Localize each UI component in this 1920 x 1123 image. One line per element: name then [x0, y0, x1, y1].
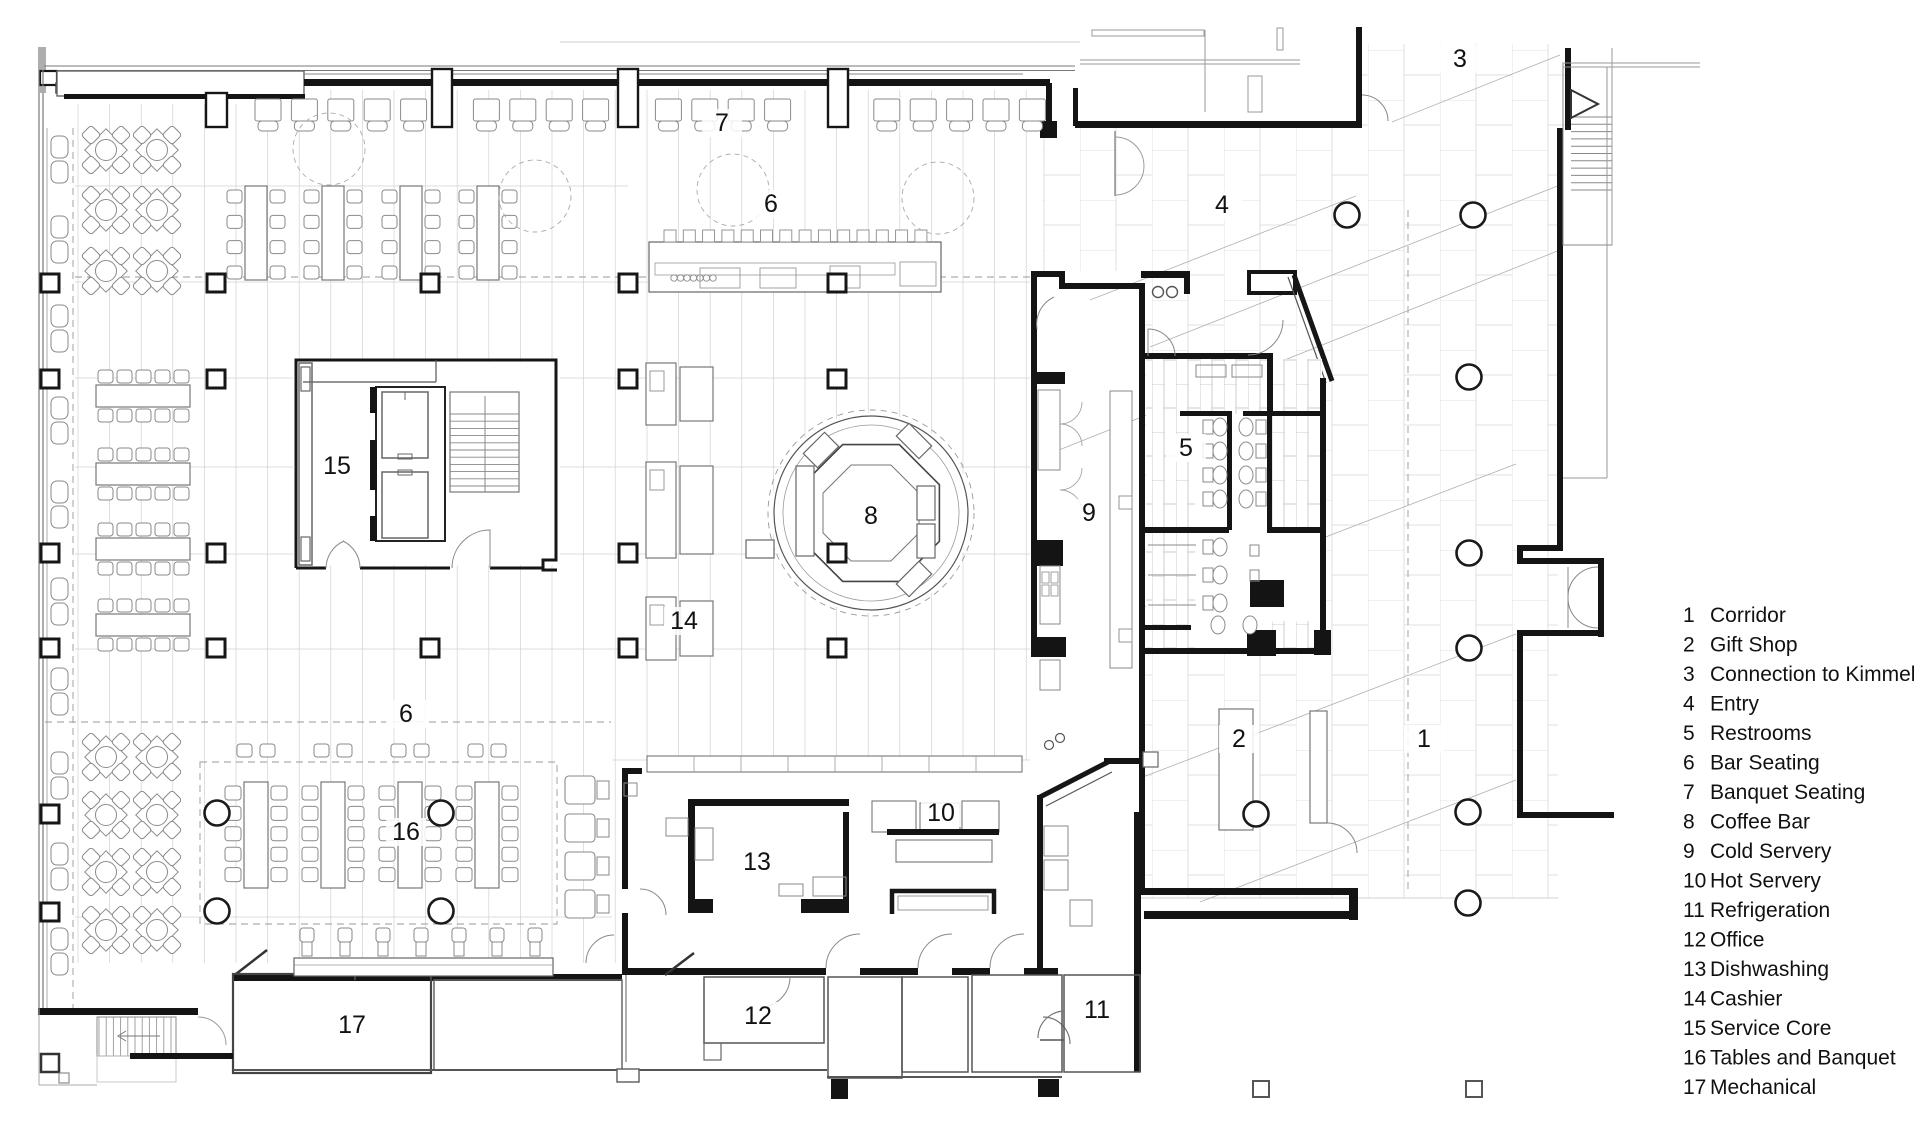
svg-text:2: 2: [1683, 634, 1695, 657]
svg-text:Dishwashing: Dishwashing: [1710, 958, 1829, 981]
svg-text:17: 17: [338, 1011, 366, 1039]
svg-text:Cold Servery: Cold Servery: [1710, 840, 1832, 863]
svg-text:3: 3: [1453, 45, 1467, 73]
svg-text:9: 9: [1082, 499, 1096, 527]
svg-text:Restrooms: Restrooms: [1710, 722, 1812, 745]
svg-text:15: 15: [1683, 1017, 1706, 1040]
svg-text:Banquet Seating: Banquet Seating: [1710, 781, 1865, 804]
svg-text:11: 11: [1683, 899, 1705, 922]
svg-text:10: 10: [1683, 870, 1706, 893]
svg-text:Coffee Bar: Coffee Bar: [1710, 811, 1810, 834]
svg-text:6: 6: [764, 190, 778, 218]
svg-text:17: 17: [1683, 1076, 1706, 1099]
svg-text:Entry: Entry: [1710, 693, 1760, 716]
svg-text:1: 1: [1417, 725, 1431, 753]
svg-text:9: 9: [1683, 840, 1695, 863]
svg-text:7: 7: [715, 109, 729, 137]
svg-text:16: 16: [392, 818, 420, 846]
svg-text:13: 13: [1683, 958, 1706, 981]
svg-text:6: 6: [399, 700, 413, 728]
svg-text:5: 5: [1683, 722, 1695, 745]
svg-text:4: 4: [1683, 693, 1695, 716]
svg-text:3: 3: [1683, 663, 1695, 686]
svg-text:15: 15: [323, 452, 351, 480]
svg-text:8: 8: [864, 502, 878, 530]
svg-text:16: 16: [1683, 1047, 1706, 1070]
svg-text:12: 12: [1683, 929, 1706, 952]
svg-text:2: 2: [1232, 725, 1246, 753]
svg-text:4: 4: [1215, 191, 1229, 219]
svg-text:14: 14: [1683, 988, 1707, 1011]
svg-text:Mechanical: Mechanical: [1710, 1076, 1816, 1099]
svg-text:Corridor: Corridor: [1710, 604, 1786, 627]
svg-text:Bar Seating: Bar Seating: [1710, 752, 1820, 775]
svg-text:Gift Shop: Gift Shop: [1710, 634, 1798, 657]
svg-text:Connection to Kimmel: Connection to Kimmel: [1710, 663, 1915, 686]
svg-text:8: 8: [1683, 811, 1695, 834]
svg-text:10: 10: [927, 799, 955, 827]
svg-text:Hot Servery: Hot Servery: [1710, 870, 1821, 893]
svg-text:Refrigeration: Refrigeration: [1710, 899, 1830, 922]
svg-text:11: 11: [1084, 996, 1110, 1024]
svg-text:Service Core: Service Core: [1710, 1017, 1831, 1040]
svg-text:Office: Office: [1710, 929, 1764, 952]
svg-text:1: 1: [1683, 604, 1695, 627]
svg-text:Tables and Banquet: Tables and Banquet: [1710, 1047, 1896, 1070]
svg-text:14: 14: [670, 607, 698, 635]
svg-text:7: 7: [1683, 781, 1695, 804]
svg-text:12: 12: [744, 1002, 772, 1030]
svg-text:13: 13: [743, 848, 771, 876]
svg-text:6: 6: [1683, 752, 1695, 775]
svg-text:Cashier: Cashier: [1710, 988, 1782, 1011]
svg-text:5: 5: [1179, 434, 1193, 462]
